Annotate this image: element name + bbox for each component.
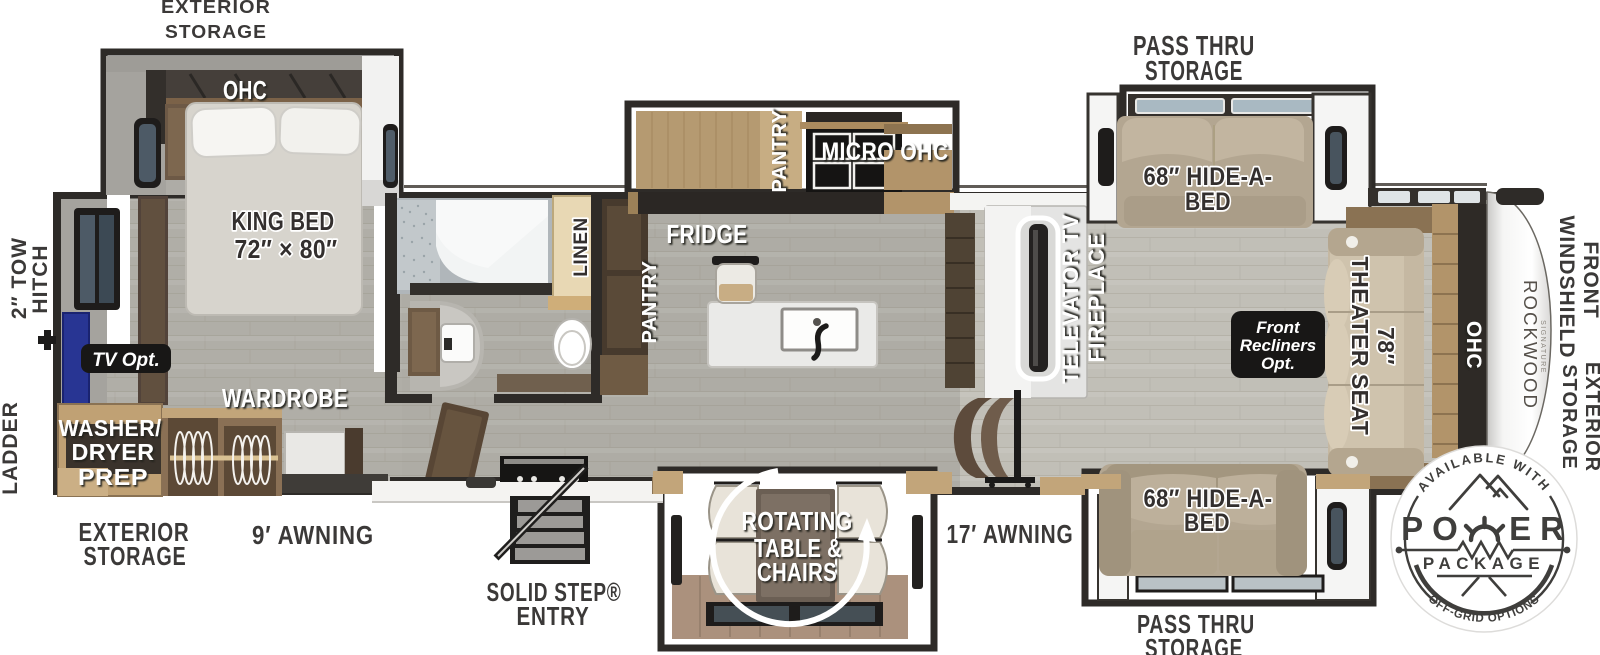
svg-text:PANTRY: PANTRY <box>639 260 661 343</box>
svg-text:SIGNATURE: SIGNATURE <box>1539 320 1546 374</box>
svg-text:17′ AWNING: 17′ AWNING <box>947 519 1074 549</box>
svg-text:PACKAGE: PACKAGE <box>1423 554 1545 573</box>
svg-text:WASHER/: WASHER/ <box>59 415 162 441</box>
svg-text:FRIDGE: FRIDGE <box>667 219 748 249</box>
svg-text:2″ TOW: 2″ TOW <box>8 237 31 319</box>
svg-text:THEATER SEAT: THEATER SEAT <box>1347 257 1373 436</box>
svg-text:ER: ER <box>1509 510 1573 547</box>
svg-text:TELEVATOR TV: TELEVATOR TV <box>1058 214 1083 384</box>
svg-text:DRYER: DRYER <box>72 439 155 465</box>
svg-text:ROTATING: ROTATING <box>742 506 853 536</box>
svg-text:68″ HIDE-A-: 68″ HIDE-A- <box>1144 163 1273 191</box>
svg-text:STORAGE: STORAGE <box>1558 364 1580 470</box>
svg-text:STORAGE: STORAGE <box>84 541 187 571</box>
svg-text:78″: 78″ <box>1373 327 1399 365</box>
svg-text:WARDROBE: WARDROBE <box>222 383 348 413</box>
svg-text:KING BED: KING BED <box>232 206 335 236</box>
svg-text:OHC: OHC <box>1462 321 1485 369</box>
svg-text:CHAIRS: CHAIRS <box>757 557 837 587</box>
svg-text:9′ AWNING: 9′ AWNING <box>252 520 374 550</box>
svg-text:MICRO OHC: MICRO OHC <box>822 138 949 166</box>
svg-text:PO: PO <box>1401 510 1467 547</box>
svg-text:Front: Front <box>1256 318 1301 337</box>
svg-text:ENTRY: ENTRY <box>517 601 590 631</box>
svg-text:ROCKWOOD: ROCKWOOD <box>1520 280 1540 410</box>
svg-text:Recliners: Recliners <box>1240 336 1317 355</box>
svg-text:BED: BED <box>1185 188 1231 216</box>
svg-text:WINDSHIELD: WINDSHIELD <box>1555 216 1578 359</box>
svg-text:OHC: OHC <box>223 75 267 105</box>
svg-text:BED: BED <box>1184 509 1230 537</box>
svg-text:LINEN: LINEN <box>571 217 592 277</box>
svg-text:EXTERIOR: EXTERIOR <box>161 0 271 17</box>
svg-text:STORAGE: STORAGE <box>1145 55 1243 86</box>
svg-text:FIREPLACE: FIREPLACE <box>1084 233 1109 362</box>
svg-text:TV Opt.: TV Opt. <box>92 350 160 371</box>
svg-text:PANTRY: PANTRY <box>769 109 791 192</box>
svg-text:FRONT: FRONT <box>1579 241 1600 318</box>
svg-text:EXTERIOR: EXTERIOR <box>1581 362 1600 472</box>
svg-text:LADDER: LADDER <box>0 401 22 495</box>
svg-text:STORAGE: STORAGE <box>165 22 267 42</box>
svg-text:PREP: PREP <box>78 464 148 490</box>
svg-text:STORAGE: STORAGE <box>1145 633 1243 655</box>
svg-text:72″ × 80″: 72″ × 80″ <box>235 234 338 264</box>
svg-text:Opt.: Opt. <box>1261 354 1295 373</box>
svg-text:HITCH: HITCH <box>29 244 52 313</box>
